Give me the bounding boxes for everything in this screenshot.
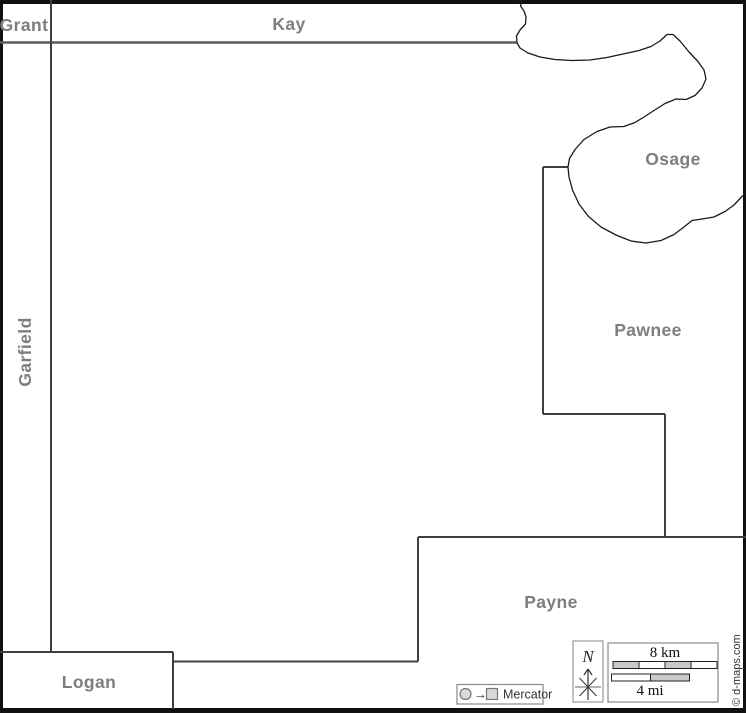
label-county-garfield: Garfield (15, 317, 35, 386)
river-boundary (517, 0, 746, 243)
globe-circle-icon (460, 689, 471, 700)
scale-bar-mi (612, 674, 690, 681)
map-frame (0, 0, 746, 713)
scale-box: 8 km 4 mi (608, 643, 718, 702)
scale-mi-label: 4 mi (636, 683, 663, 699)
label-county-osage: Osage (645, 149, 701, 169)
map-canvas: Grant Kay Osage Pawnee Payne Logan Garfi… (0, 0, 746, 713)
projection-legend: → Mercator (457, 685, 552, 705)
scale-bar-km (613, 662, 717, 669)
label-county-pawnee: Pawnee (614, 320, 682, 340)
frame-left (0, 0, 3, 713)
compass-box: N (573, 641, 603, 702)
projection-name: Mercator (503, 688, 552, 702)
scale-km-label: 8 km (650, 645, 681, 661)
label-county-logan: Logan (62, 672, 117, 692)
label-county-grant: Grant (0, 15, 48, 35)
projection-arrow-icon: → (474, 687, 487, 702)
label-county-payne: Payne (524, 592, 578, 612)
frame-top (0, 0, 746, 4)
county-map-svg: Grant Kay Osage Pawnee Payne Logan Garfi… (0, 0, 746, 713)
north-label: N (581, 647, 595, 666)
label-county-kay: Kay (272, 14, 305, 34)
county-boundaries (0, 0, 746, 709)
frame-bottom (0, 708, 746, 713)
flat-map-square-icon (487, 689, 498, 700)
dmaps-credit: © d-maps.com (731, 634, 743, 706)
county-labels: Grant Kay Osage Pawnee Payne Logan Garfi… (0, 14, 701, 692)
